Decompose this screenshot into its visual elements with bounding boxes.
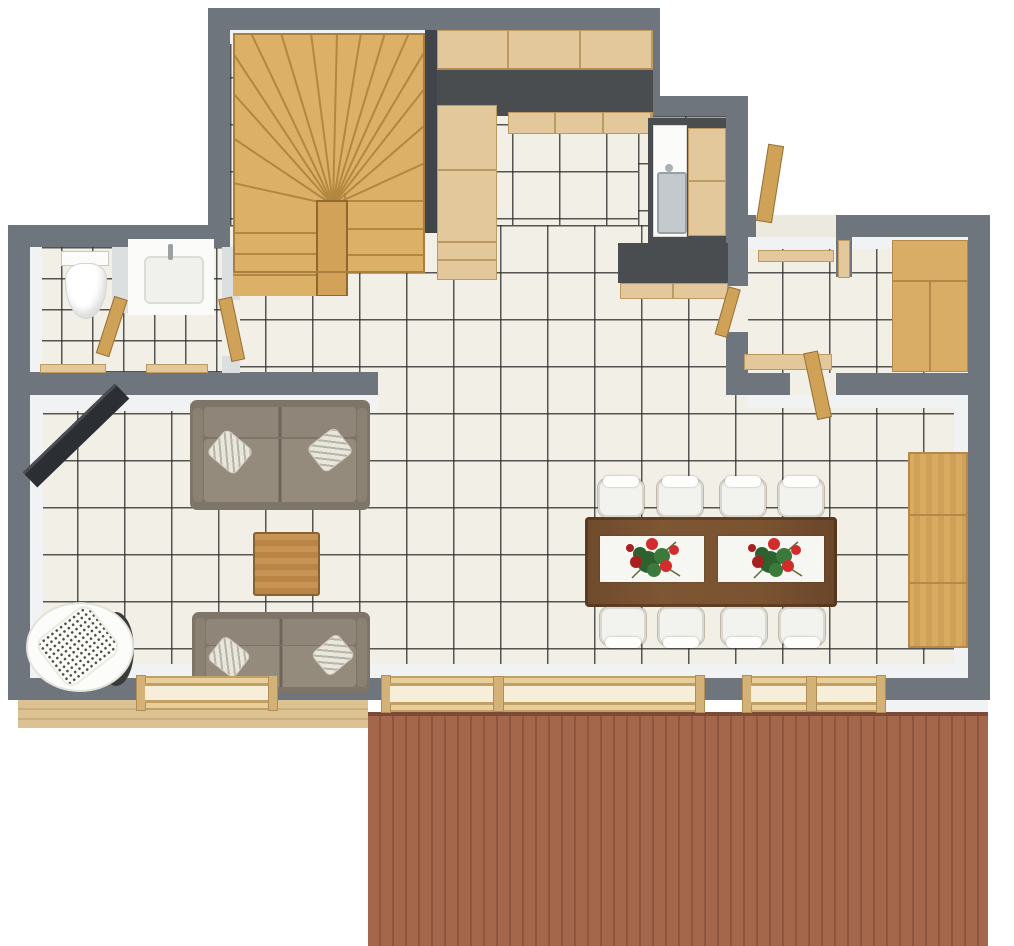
porch-door-post (838, 240, 850, 278)
door-leaf-front-entrance (756, 144, 784, 224)
dining-chair (778, 479, 824, 517)
window-mullion (806, 676, 817, 712)
sideboard-line-1 (908, 514, 968, 516)
window-pane (390, 683, 696, 705)
dining-chair (598, 479, 644, 517)
wardrobe (892, 240, 968, 372)
kitchen-upper-cabinets (437, 30, 653, 70)
porch-threshold (758, 250, 834, 262)
kitchen-tall-cabinet (437, 105, 497, 242)
window-living (138, 676, 276, 710)
chair-headrest (605, 637, 641, 648)
chair-headrest (663, 637, 699, 648)
kitchen-faucet (665, 164, 673, 172)
dining-chair (779, 607, 825, 645)
wall-entry-left-upper (726, 237, 748, 286)
coffee-table (253, 532, 320, 596)
dining-chair (658, 607, 704, 645)
dining-chair (720, 479, 766, 517)
wc-threshold (40, 364, 106, 373)
sofa-armrest (357, 618, 367, 687)
dining-chair (657, 479, 703, 517)
window-pane (145, 683, 269, 703)
wall-face-left-bath (30, 247, 42, 373)
wall-entry-top-a (726, 215, 756, 237)
window-mullion (493, 676, 504, 712)
kitchen-tall-cabinet-drawers (437, 242, 497, 280)
kitchen-base-cabinets (508, 112, 653, 134)
washbasin-basin (144, 256, 204, 304)
dining-chair (600, 607, 646, 645)
wall-top (208, 8, 660, 30)
chair-headrest (783, 476, 819, 487)
sliding-door-large (383, 676, 703, 712)
dining-chair (721, 607, 767, 645)
sideboard-line-2 (908, 582, 968, 584)
chair-headrest (662, 476, 698, 487)
winder-staircase (233, 33, 425, 296)
chair-headrest (726, 637, 762, 648)
kitchen-niche-cabinet (688, 128, 726, 236)
floor-plan (0, 0, 1014, 946)
sofa-large (190, 400, 370, 510)
bathroom-threshold (146, 364, 208, 373)
washbasin-faucet (168, 244, 173, 260)
sofa-armrest (357, 408, 367, 502)
wardrobe-door-split (929, 280, 931, 372)
kitchen-sink-basin (657, 172, 687, 234)
wall-niche-right (726, 96, 748, 216)
chair-headrest (784, 637, 820, 648)
chair-headrest (725, 476, 761, 487)
sliding-door-small (744, 676, 884, 712)
sideboard (908, 452, 968, 648)
terrace-deck (368, 712, 988, 946)
kitchen-peninsula-counter (618, 243, 728, 283)
wall-stair-left (208, 8, 230, 248)
wall-corridor (8, 372, 378, 395)
wall-face-entry-bottom (748, 395, 968, 408)
lounge-chair (26, 602, 136, 692)
flower-centerpiece-1 (618, 532, 690, 584)
wall-entry-bottom-b (836, 373, 990, 395)
chair-headrest (603, 476, 639, 487)
wall-entry-bottom-a (726, 373, 790, 395)
kitchen-peninsula-drawers (620, 283, 728, 299)
flower-centerpiece-2 (740, 532, 812, 584)
sofa-armrest (193, 408, 203, 502)
wall-entry-top-b (836, 215, 990, 237)
wall-right (968, 215, 990, 700)
